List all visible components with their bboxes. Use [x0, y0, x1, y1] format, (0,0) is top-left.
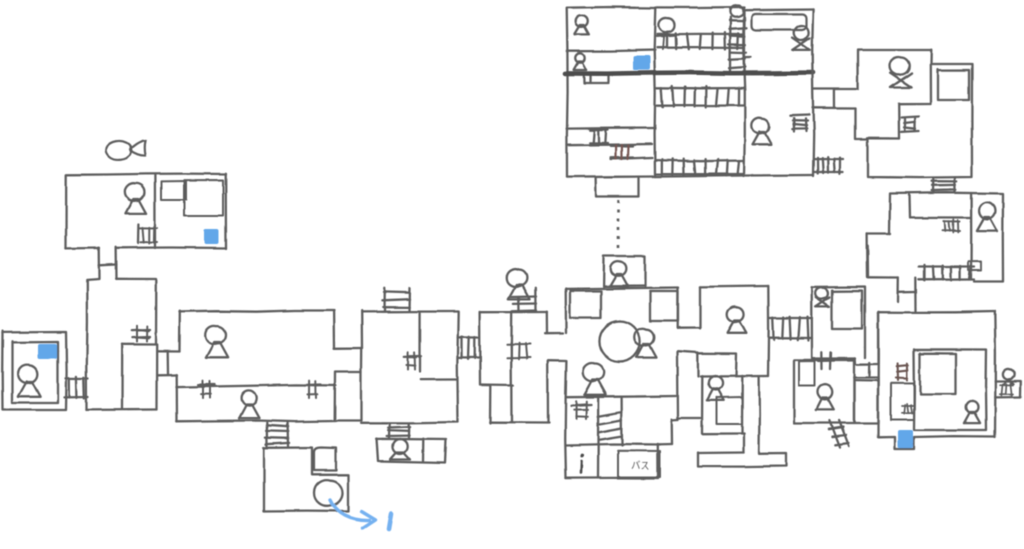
svg-text:バス: バス: [631, 461, 650, 472]
